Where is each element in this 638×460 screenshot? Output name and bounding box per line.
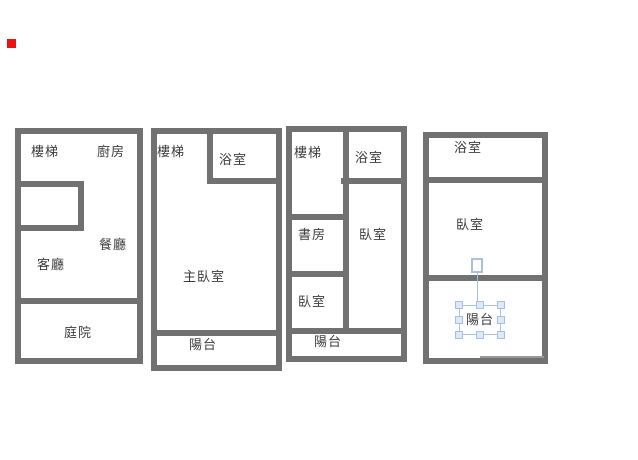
floor1-room-label-dining[interactable]: 餐廳 xyxy=(99,239,127,252)
floor1-room-label-living[interactable]: 客廳 xyxy=(37,259,65,272)
floor1-courtyard-divider-wall xyxy=(15,298,143,304)
selection-handle-bottom-right[interactable] xyxy=(497,331,505,339)
floor2-room-label-stairs[interactable]: 樓梯 xyxy=(157,146,185,159)
floor1-room-label-stairs[interactable]: 樓梯 xyxy=(31,146,59,159)
floor4-stray-line xyxy=(480,356,544,358)
floor3-room-label-bedroom-left[interactable]: 臥室 xyxy=(298,296,326,309)
floor4-bathroom-divider-wall xyxy=(423,177,548,183)
selection-handle-top-right[interactable] xyxy=(497,301,505,309)
floor2-bathroom-horizontal-wall xyxy=(207,178,282,184)
selection-handle-bottom-left[interactable] xyxy=(455,331,463,339)
floor1-room-label-kitchen[interactable]: 廚房 xyxy=(97,146,125,159)
floor3-stairs-bottom-wall xyxy=(286,214,349,220)
floor2-bathroom-vertical-wall xyxy=(207,128,213,184)
floor3-room-label-bedroom-right[interactable]: 臥室 xyxy=(359,229,387,242)
selection-rotation-handle[interactable] xyxy=(471,258,483,273)
floor3-room-label-stairs[interactable]: 樓梯 xyxy=(294,147,322,160)
floor2-room-label-balcony[interactable]: 陽台 xyxy=(189,339,217,352)
red-marker-square xyxy=(7,39,16,48)
floor3-center-vertical-wall xyxy=(343,126,349,334)
floor2-room-label-master-bedroom[interactable]: 主臥室 xyxy=(183,271,225,284)
floor2-balcony-divider-wall xyxy=(151,330,282,336)
drawing-canvas[interactable]: 樓梯 廚房 餐廳 客廳 庭院 樓梯 浴室 主臥室 陽台 樓梯 浴室 書房 臥室 … xyxy=(0,0,638,460)
floor3-room-label-study[interactable]: 書房 xyxy=(298,229,326,242)
selection-handle-top-center[interactable] xyxy=(476,301,484,309)
floor3-bathroom-horizontal-wall xyxy=(341,178,407,184)
floor2-room-label-bath[interactable]: 浴室 xyxy=(219,154,247,167)
floor1-room-label-courtyard[interactable]: 庭院 xyxy=(64,327,92,340)
floor4-room-label-bedroom[interactable]: 臥室 xyxy=(456,219,484,232)
floor1-stair-enclosure-wall xyxy=(20,181,84,231)
selection-handle-bottom-center[interactable] xyxy=(476,331,484,339)
floor3-room-label-bath[interactable]: 浴室 xyxy=(355,152,383,165)
selection-handle-mid-left[interactable] xyxy=(455,316,463,324)
floor3-balcony-divider-wall xyxy=(286,328,407,334)
floor4-room-label-balcony[interactable]: 陽台 xyxy=(466,314,494,327)
floor4-room-label-bath[interactable]: 浴室 xyxy=(454,142,482,155)
floor3-room-label-balcony[interactable]: 陽台 xyxy=(314,336,342,349)
selection-handle-mid-right[interactable] xyxy=(497,316,505,324)
floor3-study-bottom-wall xyxy=(286,271,349,277)
floor4-balcony-divider-wall xyxy=(423,275,548,281)
selection-handle-top-left[interactable] xyxy=(455,301,463,309)
